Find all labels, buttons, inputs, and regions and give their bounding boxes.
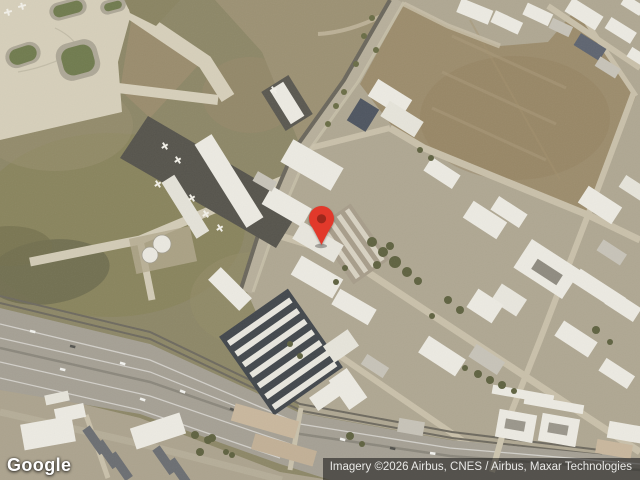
google-logo[interactable]: Google xyxy=(7,455,71,476)
attribution-bar: Imagery ©2026 Airbus, CNES / Airbus, Max… xyxy=(323,458,640,480)
attribution-text: Imagery ©2026 Airbus, CNES / Airbus, Max… xyxy=(330,461,632,473)
map-viewport[interactable]: Google Imagery ©2026 Airbus, CNES / Airb… xyxy=(0,0,640,480)
pin-hole xyxy=(317,214,326,223)
map-pin-icon[interactable] xyxy=(308,205,335,246)
pin-body xyxy=(309,206,334,245)
